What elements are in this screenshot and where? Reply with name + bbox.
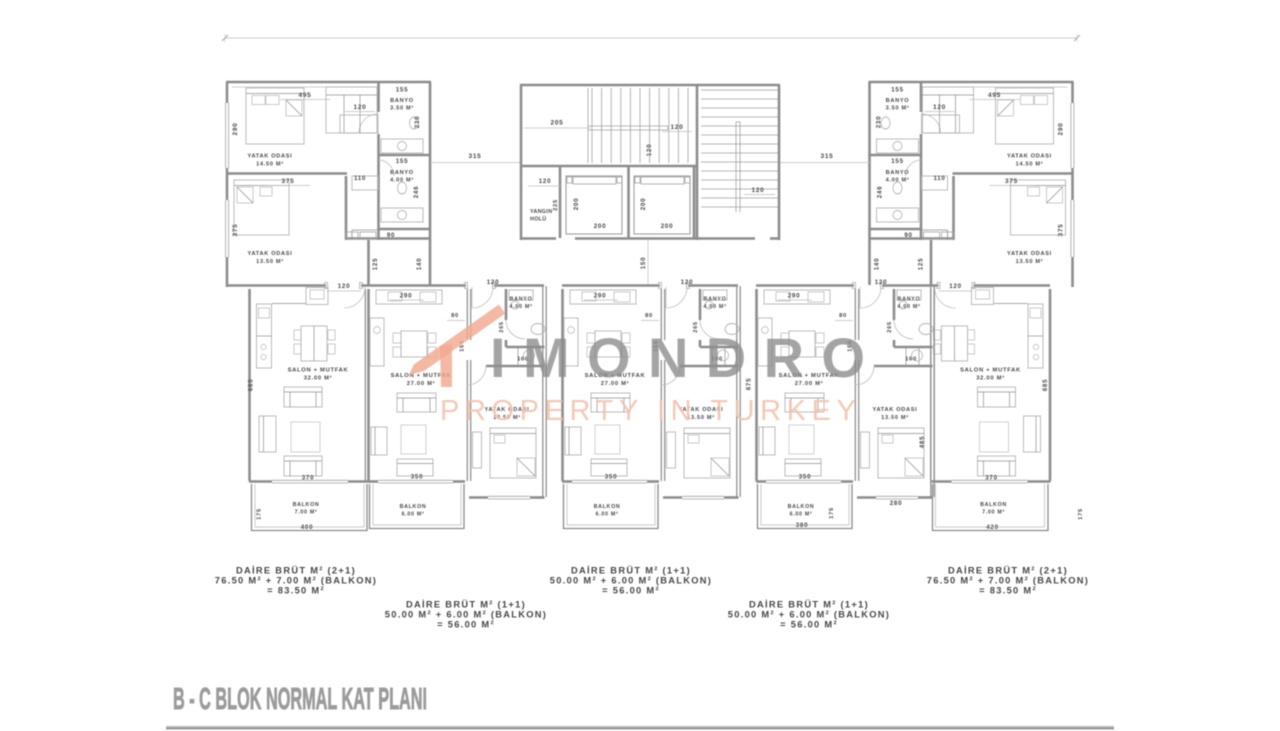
svg-text:BANYO: BANYO xyxy=(510,297,533,303)
svg-text:13.50 M²: 13.50 M² xyxy=(881,414,909,421)
svg-text:PROPERTY IN TURKEY: PROPERTY IN TURKEY xyxy=(440,395,862,427)
svg-text:BANYO: BANYO xyxy=(886,98,910,104)
svg-text:375: 375 xyxy=(1058,224,1065,237)
svg-text:50.00 M² + 6.00 M² (BALKON): 50.00 M² + 6.00 M² (BALKON) xyxy=(550,576,712,586)
svg-text:BANYO: BANYO xyxy=(390,98,414,104)
svg-text:120: 120 xyxy=(949,283,961,290)
svg-text:90: 90 xyxy=(904,232,912,239)
svg-text:315: 315 xyxy=(469,153,482,160)
svg-text:BANYO: BANYO xyxy=(886,170,910,176)
svg-text:4.00 M²: 4.00 M² xyxy=(703,304,726,310)
svg-text:110: 110 xyxy=(933,175,945,182)
svg-text:290: 290 xyxy=(594,293,606,300)
svg-text:80: 80 xyxy=(645,313,653,319)
svg-text:315: 315 xyxy=(821,153,834,160)
svg-text:110: 110 xyxy=(354,175,366,182)
svg-text:HOLÜ: HOLÜ xyxy=(530,216,546,223)
svg-text:290: 290 xyxy=(400,293,412,300)
svg-text:120: 120 xyxy=(671,124,684,131)
svg-text:685: 685 xyxy=(248,379,255,391)
svg-text:6.00 M²: 6.00 M² xyxy=(790,512,813,518)
svg-text:80: 80 xyxy=(839,313,847,319)
svg-text:= 83.50 M²: = 83.50 M² xyxy=(267,585,325,595)
svg-text:BALKON: BALKON xyxy=(980,502,1007,508)
svg-text:175: 175 xyxy=(829,507,835,519)
svg-text:685: 685 xyxy=(1042,379,1049,391)
svg-text:400: 400 xyxy=(301,524,313,531)
svg-text:205: 205 xyxy=(551,120,564,127)
svg-text:DAİRE BRÜT M² (1+1): DAİRE BRÜT M² (1+1) xyxy=(406,600,526,610)
svg-text:370: 370 xyxy=(302,475,314,482)
svg-text:155: 155 xyxy=(396,87,408,94)
svg-text:4.00 M²: 4.00 M² xyxy=(886,177,910,184)
svg-text:7.00 M²: 7.00 M² xyxy=(295,510,318,516)
svg-text:155: 155 xyxy=(396,158,408,165)
svg-text:4.00 M²: 4.00 M² xyxy=(509,304,532,310)
svg-text:= 56.00 M²: = 56.00 M² xyxy=(602,585,660,595)
svg-text:27.00 M²: 27.00 M² xyxy=(407,380,435,387)
svg-text:YATAK ODASI: YATAK ODASI xyxy=(248,154,293,160)
svg-text:230: 230 xyxy=(414,116,421,128)
svg-text:290: 290 xyxy=(232,123,239,136)
svg-text:495: 495 xyxy=(299,92,312,99)
svg-text:DAİRE BRÜT M² (2+1): DAİRE BRÜT M² (2+1) xyxy=(948,566,1068,576)
svg-text:6.00 M²: 6.00 M² xyxy=(596,512,619,518)
svg-text:DAİRE BRÜT M² (1+1): DAİRE BRÜT M² (1+1) xyxy=(749,600,869,610)
svg-text:290: 290 xyxy=(788,293,800,300)
svg-text:YATAK ODASI: YATAK ODASI xyxy=(1007,251,1052,257)
svg-text:6.00 M²: 6.00 M² xyxy=(402,512,425,518)
svg-text:50.00 M² + 6.00 M² (BALKON): 50.00 M² + 6.00 M² (BALKON) xyxy=(728,610,890,620)
svg-text:495: 495 xyxy=(988,92,1001,99)
svg-text:150: 150 xyxy=(640,257,647,269)
svg-text:160: 160 xyxy=(905,357,917,363)
svg-text:140: 140 xyxy=(874,258,881,270)
svg-text:120: 120 xyxy=(646,144,653,156)
svg-text:120: 120 xyxy=(487,279,499,286)
svg-text:200: 200 xyxy=(573,198,580,210)
svg-text:76.50 M² + 7.00 M² (BALKON): 76.50 M² + 7.00 M² (BALKON) xyxy=(927,576,1089,586)
svg-text:120: 120 xyxy=(875,279,887,286)
svg-text:375: 375 xyxy=(282,178,295,185)
svg-text:485: 485 xyxy=(919,436,926,448)
svg-text:3.50 M²: 3.50 M² xyxy=(390,105,414,112)
svg-text:420: 420 xyxy=(986,524,998,531)
svg-text:225: 225 xyxy=(553,199,559,211)
svg-text:155: 155 xyxy=(891,158,903,165)
svg-text:120: 120 xyxy=(539,178,551,185)
svg-text:14.50 M²: 14.50 M² xyxy=(1016,161,1044,168)
svg-text:200: 200 xyxy=(594,223,606,230)
svg-text:175: 175 xyxy=(1078,508,1084,520)
svg-text:YANGIN: YANGIN xyxy=(530,209,552,215)
svg-text:BALKON: BALKON xyxy=(293,502,320,508)
svg-text:32.00 M²: 32.00 M² xyxy=(976,375,1004,382)
svg-text:76.50 M² + 7.00 M² (BALKON): 76.50 M² + 7.00 M² (BALKON) xyxy=(215,576,377,586)
svg-text:125: 125 xyxy=(372,258,379,270)
svg-text:= 56.00 M²: = 56.00 M² xyxy=(437,619,495,629)
svg-text:350: 350 xyxy=(411,474,423,481)
svg-text:DAİRE BRÜT M² (1+1): DAİRE BRÜT M² (1+1) xyxy=(571,566,691,576)
svg-text:350: 350 xyxy=(799,474,811,481)
svg-text:80: 80 xyxy=(451,313,459,319)
svg-text:13.50 M²: 13.50 M² xyxy=(256,258,284,265)
svg-text:BALKON: BALKON xyxy=(594,504,621,510)
svg-text:32.00 M²: 32.00 M² xyxy=(304,375,332,382)
svg-text:YATAK ODASI: YATAK ODASI xyxy=(248,251,293,257)
svg-text:7.00 M²: 7.00 M² xyxy=(982,510,1005,516)
svg-text:200: 200 xyxy=(640,198,647,210)
svg-text:280: 280 xyxy=(890,500,902,507)
svg-text:IMONDRO: IMONDRO xyxy=(490,326,882,389)
svg-text:246: 246 xyxy=(877,186,884,198)
svg-text:375: 375 xyxy=(1005,178,1018,185)
svg-text:BALKON: BALKON xyxy=(788,504,815,510)
svg-text:SALON + MUTFAK: SALON + MUTFAK xyxy=(288,368,349,374)
svg-text:375: 375 xyxy=(232,224,239,237)
svg-text:DAİRE BRÜT M² (2+1): DAİRE BRÜT M² (2+1) xyxy=(236,566,356,576)
svg-text:SALON + MUTFAK: SALON + MUTFAK xyxy=(960,368,1021,374)
svg-text:370: 370 xyxy=(985,475,997,482)
svg-text:125: 125 xyxy=(918,258,925,270)
svg-text:230: 230 xyxy=(876,116,883,128)
svg-text:200: 200 xyxy=(661,223,673,230)
svg-text:246: 246 xyxy=(413,186,420,198)
svg-text:B - C BLOK NORMAL KAT PLANI: B - C BLOK NORMAL KAT PLANI xyxy=(173,681,427,716)
svg-text:= 83.50 M²: = 83.50 M² xyxy=(979,585,1037,595)
svg-text:120: 120 xyxy=(681,279,693,286)
svg-text:350: 350 xyxy=(605,474,617,481)
svg-text:4.00 M²: 4.00 M² xyxy=(897,304,920,310)
svg-text:140: 140 xyxy=(416,258,423,270)
svg-text:120: 120 xyxy=(338,283,350,290)
svg-text:290: 290 xyxy=(1058,123,1065,136)
svg-text:120: 120 xyxy=(933,104,946,111)
svg-text:50.00 M² + 6.00 M² (BALKON): 50.00 M² + 6.00 M² (BALKON) xyxy=(385,610,547,620)
svg-text:3.50 M²: 3.50 M² xyxy=(886,105,910,112)
svg-text:90: 90 xyxy=(387,232,395,239)
svg-text:= 56.00 M²: = 56.00 M² xyxy=(780,619,838,629)
svg-text:120: 120 xyxy=(752,187,765,194)
svg-text:155: 155 xyxy=(891,87,903,94)
svg-text:4.00 M²: 4.00 M² xyxy=(390,177,414,184)
svg-text:120: 120 xyxy=(354,104,367,111)
svg-text:14.50 M²: 14.50 M² xyxy=(256,161,284,168)
svg-text:BALKON: BALKON xyxy=(400,504,427,510)
svg-text:175: 175 xyxy=(257,508,263,520)
svg-text:YATAK ODASI: YATAK ODASI xyxy=(873,407,918,413)
svg-text:265: 265 xyxy=(887,321,893,332)
svg-text:380: 380 xyxy=(796,522,808,529)
svg-text:BANYO: BANYO xyxy=(898,297,921,303)
svg-text:13.50 M²: 13.50 M² xyxy=(1016,258,1044,265)
svg-text:BANYO: BANYO xyxy=(704,297,727,303)
svg-text:YATAK ODASI: YATAK ODASI xyxy=(1007,154,1052,160)
svg-text:BANYO: BANYO xyxy=(390,170,414,176)
